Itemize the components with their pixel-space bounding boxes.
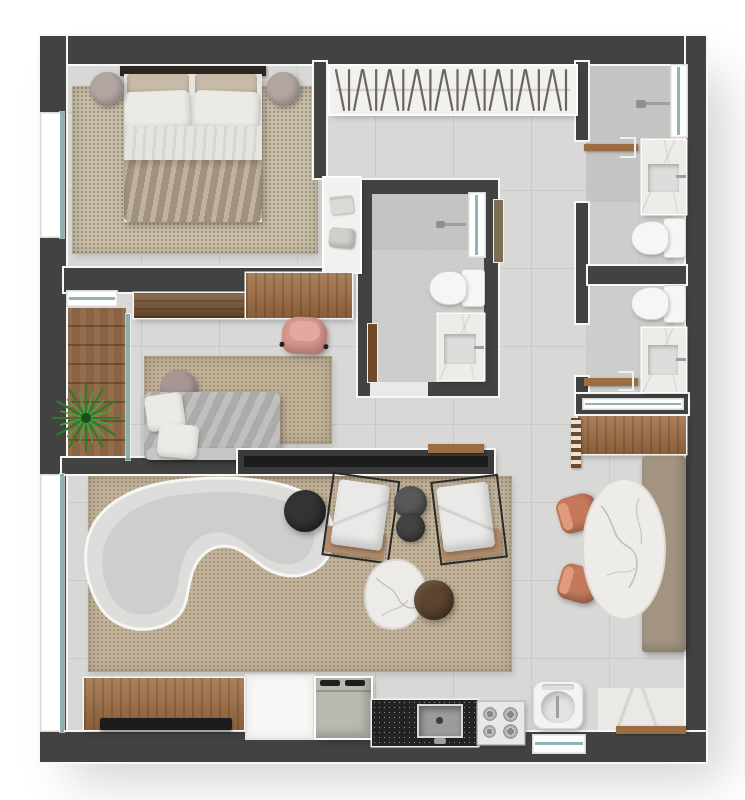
refrigerator	[316, 678, 371, 738]
console-wood-shelf	[428, 444, 484, 453]
office-window	[66, 290, 118, 307]
double-bed	[124, 74, 262, 222]
office-chair	[281, 316, 328, 355]
ensuite-door-leaf	[368, 324, 377, 382]
potted-plant	[48, 380, 124, 456]
bath2-toilet-bowl	[632, 288, 668, 319]
ensuite-vanity	[438, 314, 484, 380]
bed-duvet	[124, 160, 262, 222]
ensuite-shower-icon	[436, 221, 466, 229]
bed-sheet-fold	[124, 126, 262, 162]
tv-screen	[244, 456, 488, 467]
bath1-shower-icon	[636, 99, 670, 109]
pillow-white-left	[124, 90, 190, 130]
closet-hangers	[330, 66, 576, 114]
ensuite-basin	[444, 334, 476, 364]
bath1-vanity	[642, 140, 686, 214]
balcony-glass-door	[126, 314, 130, 460]
outer-wall-right	[686, 36, 706, 762]
living-window-wall	[40, 474, 64, 732]
nightstand-left	[90, 72, 124, 106]
bedroom-window	[40, 112, 64, 238]
wardrobe	[330, 66, 576, 114]
kitchen-sink	[419, 706, 461, 736]
hall-door-leaf	[494, 200, 503, 262]
entry-door-panel	[247, 676, 313, 738]
folded-towel	[329, 195, 354, 215]
armchair-right	[427, 472, 505, 566]
sofa-side-table	[284, 490, 326, 532]
outer-wall-top	[40, 36, 706, 64]
dining-table	[581, 476, 667, 622]
toiletry-bag	[328, 227, 356, 249]
ensuite-faucet-icon	[474, 346, 484, 349]
kitchen-window	[532, 734, 586, 754]
dining-console	[578, 416, 686, 454]
bath2-faucet-icon	[676, 358, 686, 361]
pouf-bottom	[396, 513, 425, 542]
bath1-towel-hook	[620, 137, 636, 158]
sideboard-tv-screen	[100, 718, 232, 730]
ensuite-door-opening	[370, 382, 428, 396]
bath1-basin	[648, 164, 679, 192]
daybed-pillow-2	[156, 422, 199, 460]
cooktop	[478, 702, 524, 744]
coffee-table-wood	[414, 580, 454, 620]
office-shelf	[134, 293, 246, 318]
floor-plan-image	[0, 0, 745, 800]
fridge-handle-right	[345, 680, 365, 686]
tv-console	[238, 450, 494, 474]
nightstand-right	[266, 72, 300, 106]
laundry-tub	[534, 682, 582, 728]
towel-shelf-unit	[324, 178, 360, 272]
corridor-wall-seg2	[576, 203, 588, 323]
dining-console-slats	[571, 418, 581, 468]
fridge-handle-left	[320, 680, 340, 686]
office-desk	[246, 273, 352, 318]
ensuite-window	[468, 192, 486, 258]
bath1-toilet-bowl	[632, 222, 668, 254]
kitchen-faucet-icon	[434, 738, 446, 744]
ensuite-toilet-bowl	[430, 272, 466, 304]
bath1-window	[670, 64, 688, 138]
kitchen-counter-granite	[372, 700, 478, 746]
dining-hall-window	[582, 398, 684, 410]
bath2-basin	[648, 345, 678, 375]
bathrooms-divider-wall	[588, 266, 686, 284]
pillow-white-right	[193, 90, 259, 130]
armchair-left	[320, 470, 399, 565]
service-wood-shelf	[616, 726, 686, 734]
bath2-vanity	[642, 328, 686, 392]
bath1-faucet-icon	[676, 175, 686, 178]
bedroom-right-wall	[314, 62, 326, 178]
corridor-wall-seg1	[576, 62, 588, 140]
office-living-wall	[62, 458, 240, 474]
bath2-towel-hook	[618, 371, 634, 391]
